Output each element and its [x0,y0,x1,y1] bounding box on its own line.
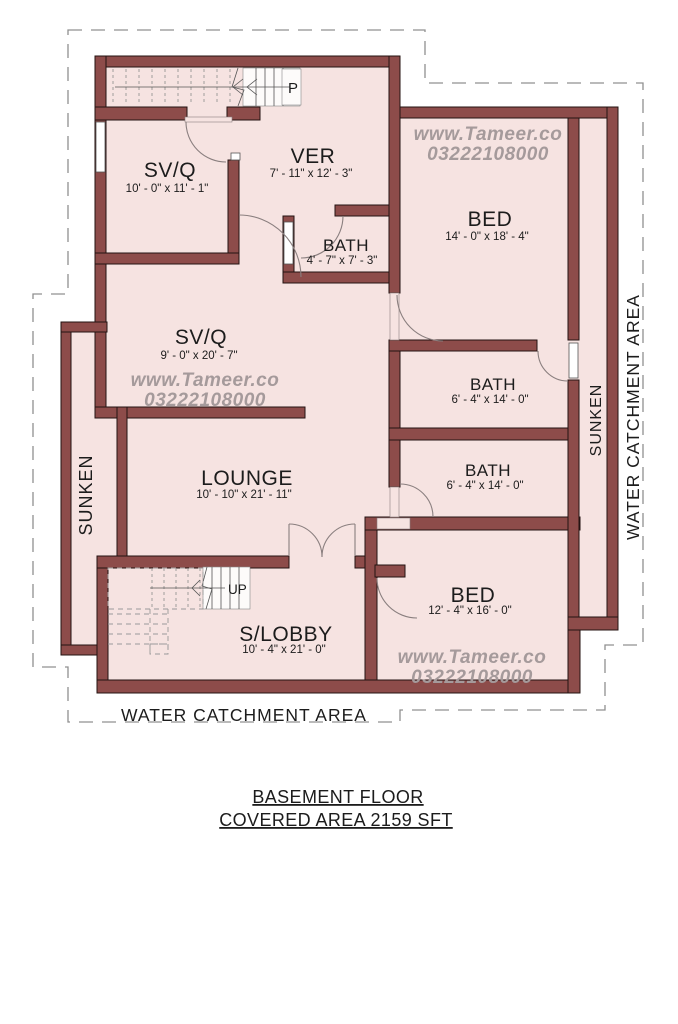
room-label-bed-top: BED [468,208,513,231]
jamb-divider [231,153,240,160]
title-line1: BASEMENT FLOOR [252,787,423,807]
room-dims-svq1: 10' - 0" x 11' - 1" [126,183,209,195]
room-label-lounge: LOUNGE [201,467,293,490]
door-opening-bed-bottom [377,518,410,529]
sunken-right-label: SUNKEN [588,384,605,457]
stair-up-label: UP [228,582,247,597]
room-label-slobby: S/LOBBY [239,623,332,646]
room-dims-bath-top: 4' - 7" x 7' - 3" [307,255,378,267]
floor-plan-page: P UP www.Tameer.co 03222108 [0,0,678,1024]
door-header-stairs [185,117,232,122]
room-label-bed-bottom: BED [451,584,496,607]
watermark-line2: 03222108000 [411,667,533,688]
window-right-strip [569,343,578,378]
title-line2: COVERED AREA 2159 SFT [219,810,453,830]
water-catchment-right-label: WATER CATCHMENT AREA [623,294,643,540]
room-label-svq1: SV/Q [144,159,196,182]
window-bath-top [284,222,293,264]
watermark-line1: www.Tameer.co [131,370,280,391]
room-dims-bath-low: 6' - 4" x 14' - 0" [446,480,523,492]
watermark-line2: 03222108000 [144,390,266,411]
room-dims-ver: 7' - 11" x 12' - 3" [270,168,353,180]
room-dims-bed-top: 14' - 0" x 18' - 4" [445,231,529,243]
room-label-bath-top: BATH [323,236,369,255]
room-label-bath-mid: BATH [470,375,516,394]
room-dims-svq2: 9' - 0" x 20' - 7" [160,350,237,362]
room-dims-bath-mid: 6' - 4" x 14' - 0" [451,394,528,406]
stair-down-label: P [288,80,298,97]
floor-plan-drawing: P UP www.Tameer.co 03222108 [0,0,678,1024]
room-dims-bed-bottom: 12' - 4" x 16' - 0" [428,605,512,617]
water-catchment-bottom-label: WATER CATCHMENT AREA [121,705,367,725]
room-dims-lounge: 10' - 10" x 21' - 11" [196,489,291,501]
room-dims-slobby: 10' - 4" x 21' - 0" [242,644,326,656]
watermark-line1: www.Tameer.co [414,124,563,145]
door-opening-bath-low [390,487,399,517]
room-label-svq2: SV/Q [175,326,227,349]
room-label-bath-low: BATH [465,461,511,480]
room-label-ver: VER [291,145,336,168]
watermark-line1: www.Tameer.co [398,647,547,668]
watermark-line2: 03222108000 [427,144,549,165]
drawing-title: BASEMENT FLOOR COVERED AREA 2159 SFT [219,787,453,830]
window-left-wall [96,122,105,172]
sunken-left-label: SUNKEN [76,454,96,535]
